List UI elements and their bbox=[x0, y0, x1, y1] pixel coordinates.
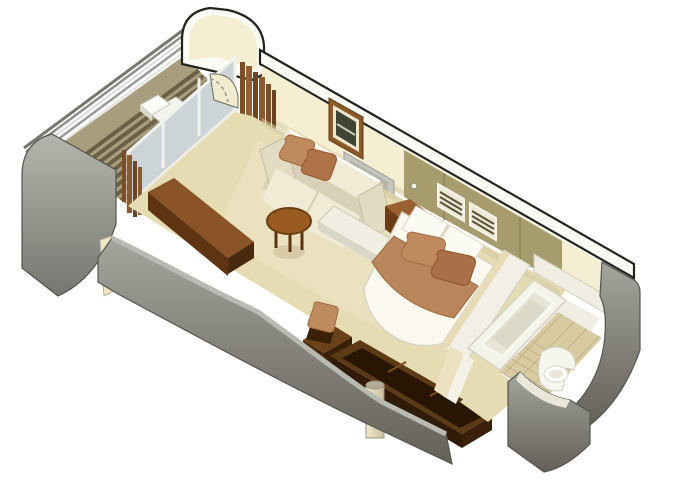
floorplan-canvas bbox=[0, 0, 680, 486]
stateroom-floorplan bbox=[0, 0, 680, 486]
wardrobe-knob bbox=[411, 183, 417, 189]
toilet bbox=[538, 347, 575, 391]
